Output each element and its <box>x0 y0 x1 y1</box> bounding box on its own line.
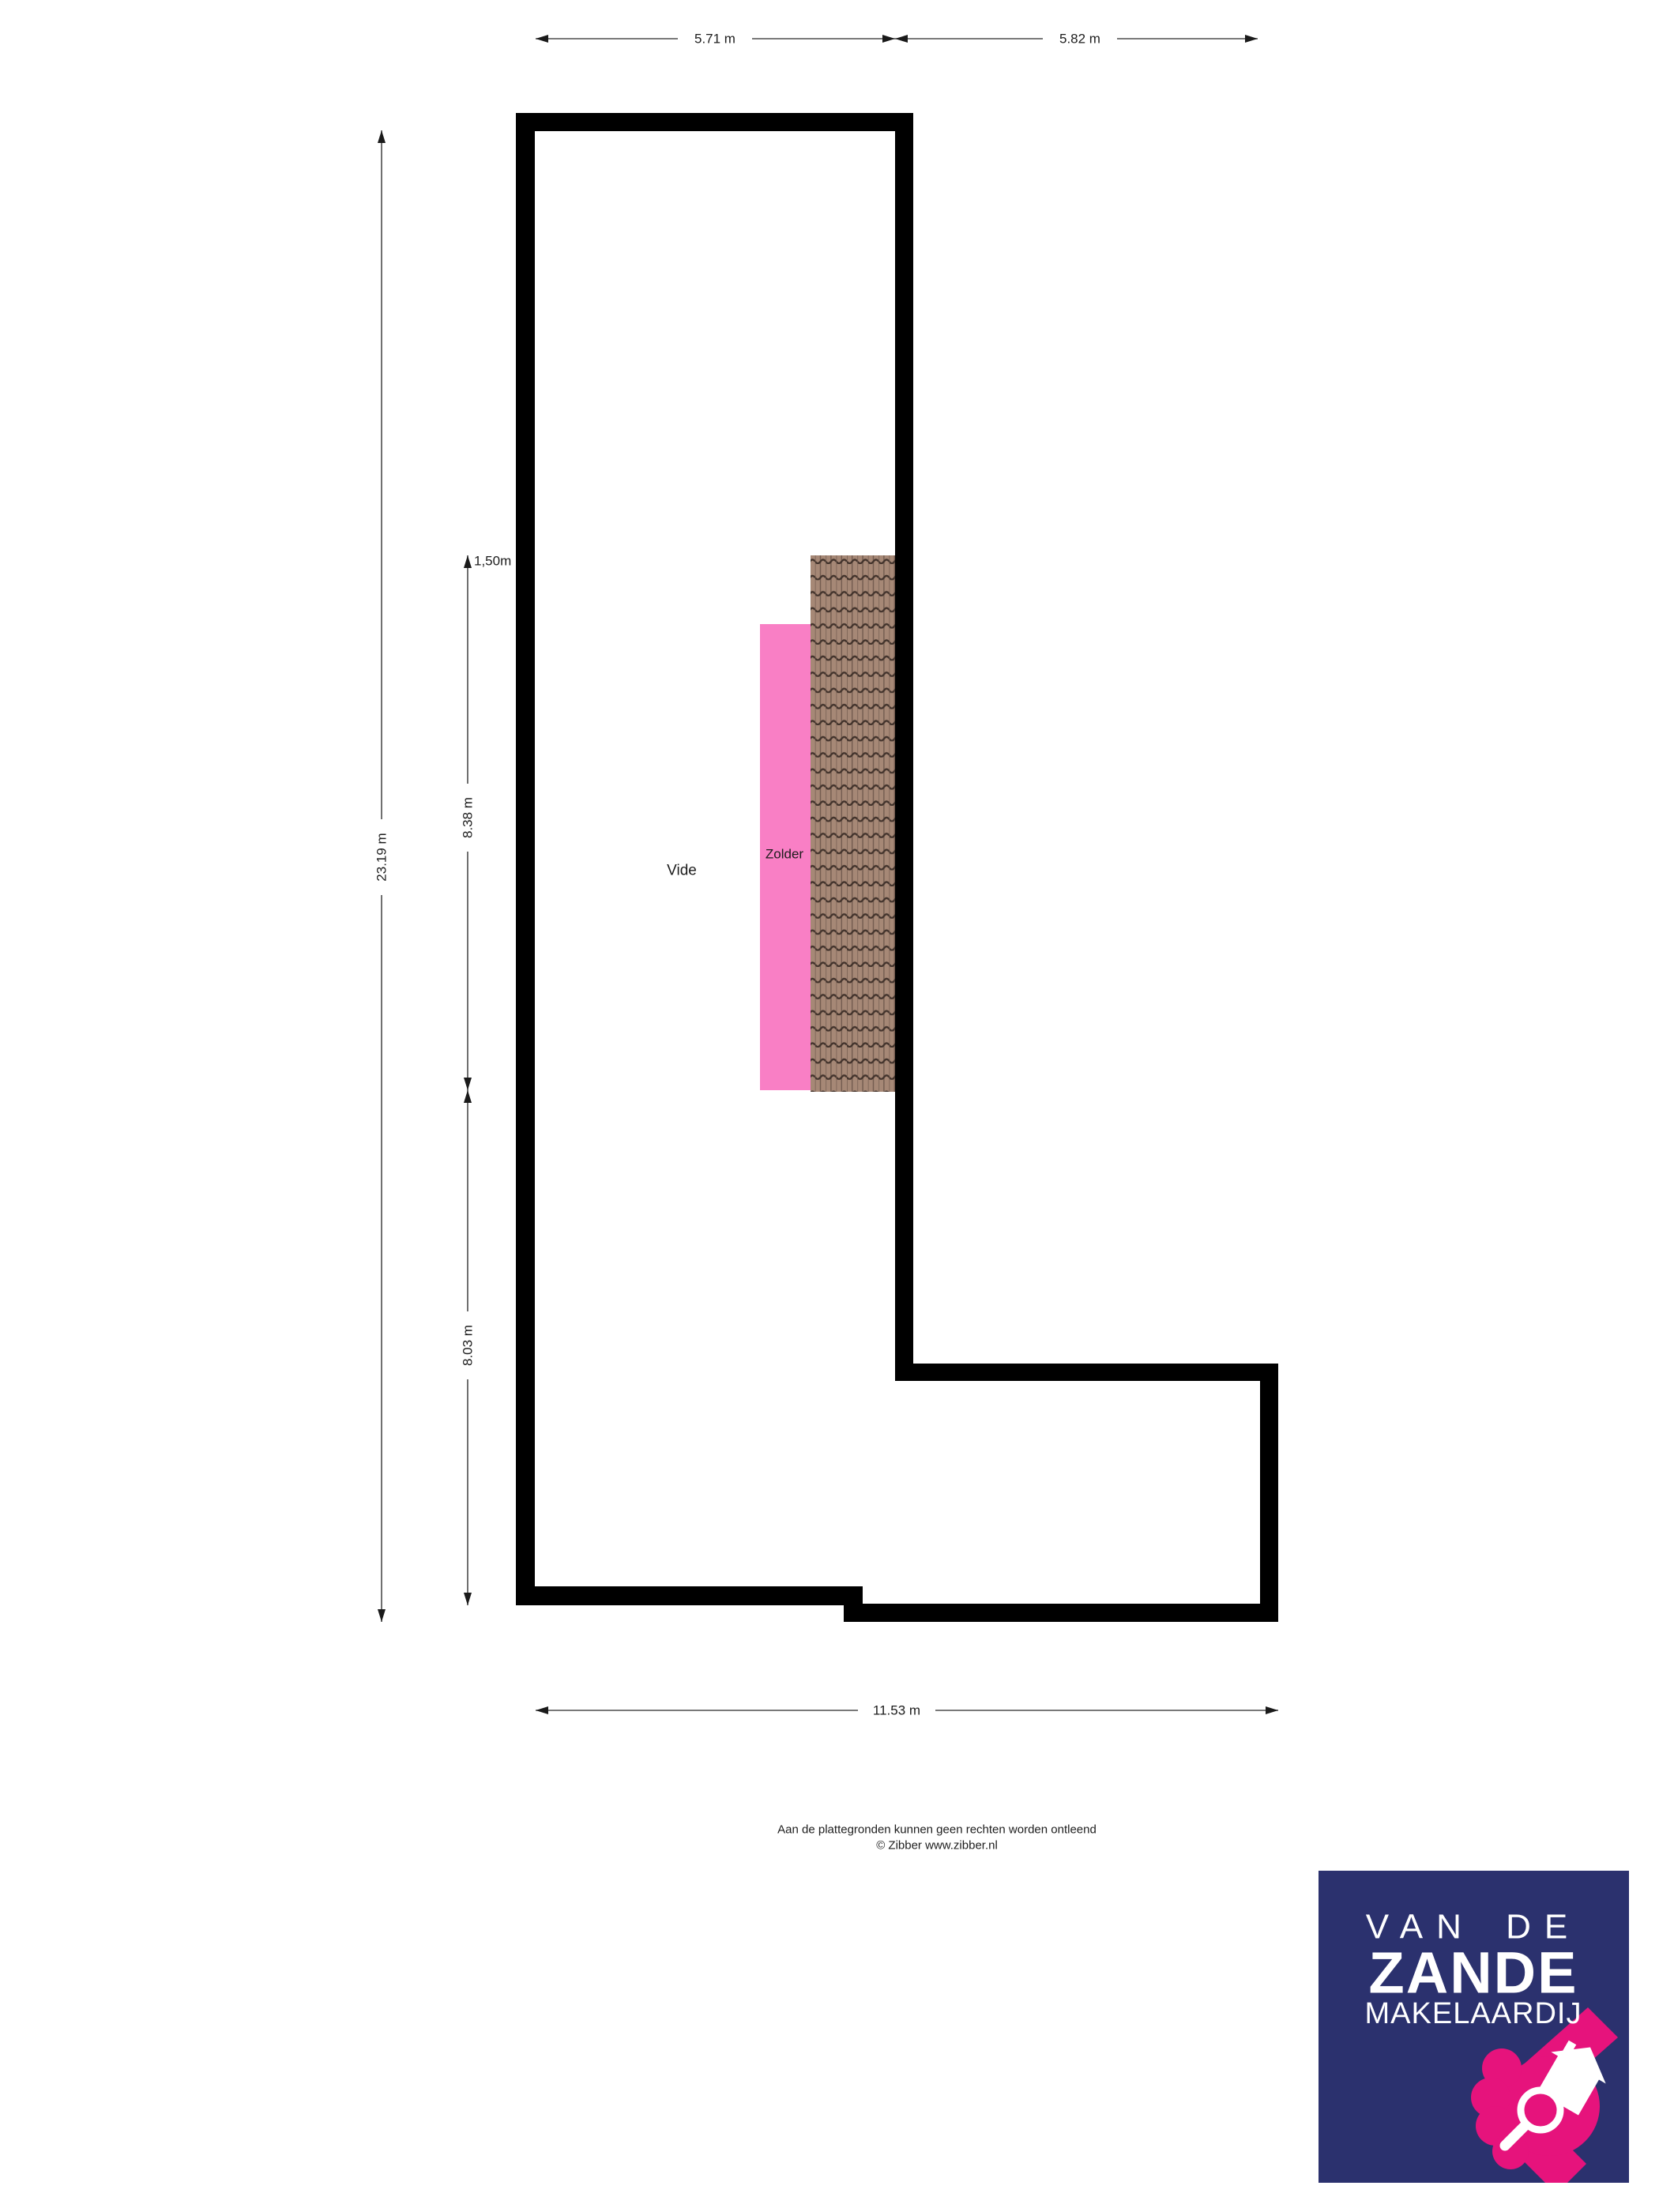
dimension-label-inner-lower: 8.03 m <box>461 1325 476 1366</box>
wall-top <box>516 113 913 131</box>
walls <box>516 113 1278 1622</box>
wall-bottom-right <box>844 1604 1278 1622</box>
wall-left <box>516 113 535 1605</box>
dimension-label-top-right: 5.82 m <box>1059 32 1100 47</box>
footer: Aan de plattegronden kunnen geen rechten… <box>777 1823 1097 1853</box>
dimension-label-left: 23.19 m <box>374 833 389 881</box>
room-label-vide: Vide <box>667 863 697 879</box>
dimension-label-inner-upper: 8.38 m <box>461 797 476 838</box>
wall-right <box>895 113 913 1381</box>
logo-text: VAN DE ZANDE MAKELAARDIJ <box>1365 1908 1582 2031</box>
company-logo: VAN DE ZANDE MAKELAARDIJ <box>1319 1871 1629 2194</box>
dimension-label-headroom: 1,50m <box>474 554 511 569</box>
wall-extension-right <box>1260 1364 1278 1622</box>
wall-extension-top <box>895 1364 1278 1381</box>
footer-disclaimer: Aan de plattegronden kunnen geen rechten… <box>777 1823 1097 1837</box>
dimension-label-top-left: 5.71 m <box>694 32 735 47</box>
footer-copyright: © Zibber www.zibber.nl <box>876 1839 998 1853</box>
floor-plan-page: 5.71 m 5.82 m 23.19 m 1,50m 8.38 m 8.03 … <box>0 0 1659 2212</box>
wall-bottom-left <box>516 1586 863 1605</box>
floor-plan-drawing: 5.71 m 5.82 m 23.19 m 1,50m 8.38 m 8.03 … <box>0 0 1659 2212</box>
room-label-zolder: Zolder <box>766 847 804 862</box>
logo-line2: ZANDE <box>1369 1940 1578 2006</box>
roof-tile-area <box>811 555 895 1092</box>
logo-line3: MAKELAARDIJ <box>1365 1997 1582 2030</box>
dimension-label-gaps <box>372 29 1117 1720</box>
dimension-label-bottom: 11.53 m <box>873 1703 920 1718</box>
plan-labels: 5.71 m 5.82 m 23.19 m 1,50m 8.38 m 8.03 … <box>374 32 1100 1718</box>
